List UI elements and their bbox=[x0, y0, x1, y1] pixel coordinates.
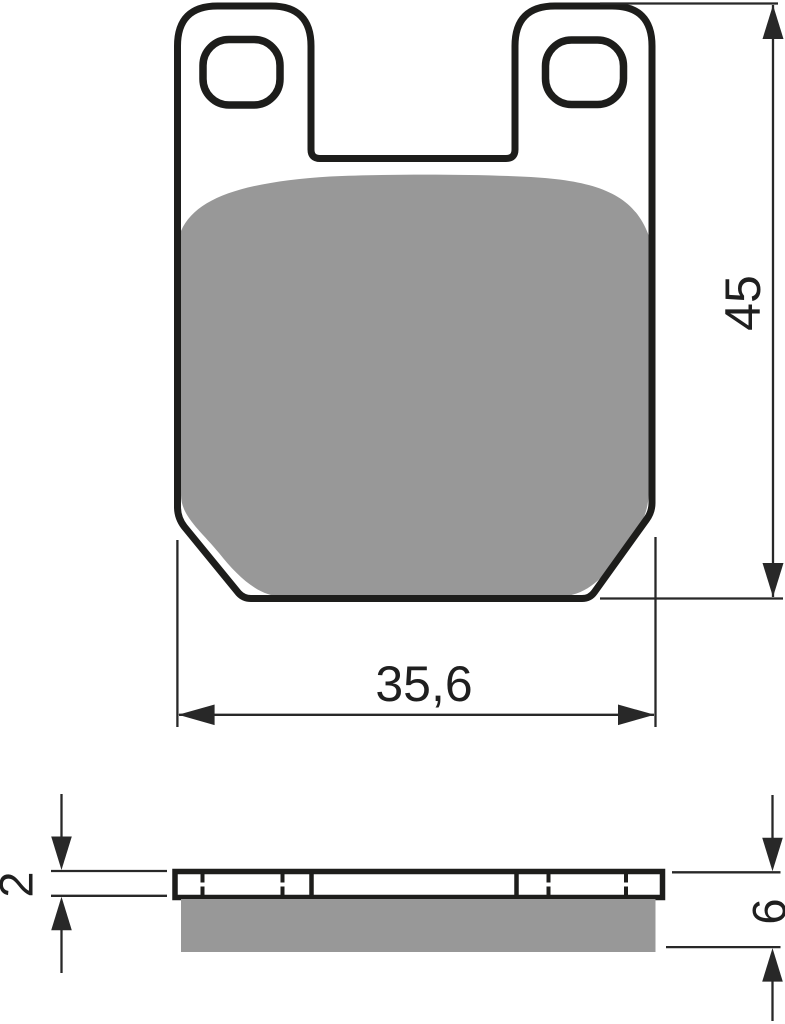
svg-text:2: 2 bbox=[0, 871, 43, 897]
svg-text:45: 45 bbox=[715, 275, 771, 331]
svg-text:6: 6 bbox=[743, 898, 785, 924]
svg-text:35,6: 35,6 bbox=[375, 656, 472, 712]
